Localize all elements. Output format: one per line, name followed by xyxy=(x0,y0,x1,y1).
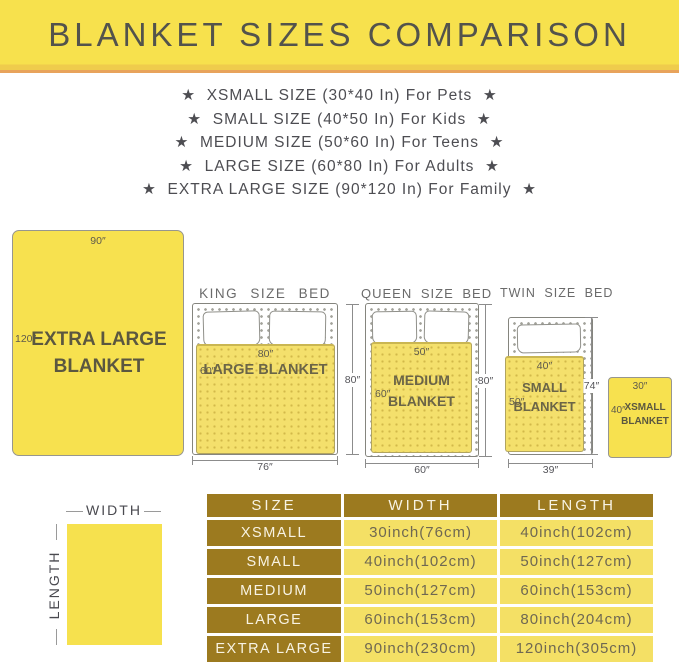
xsmall-blanket-label: XSMALL BLANKET xyxy=(620,401,670,429)
large-blanket: 80″ 60″ LARGE BLANKET xyxy=(196,344,335,454)
table-header-row: SIZE WIDTH LENGTH xyxy=(207,494,656,517)
col-header-size: SIZE xyxy=(207,494,341,517)
width-tick-right xyxy=(144,511,161,512)
twin-bed-title: TWIN SIZE BED xyxy=(500,286,600,300)
xl-blanket-label: EXTRA LARGE BLANKET xyxy=(24,326,174,380)
row-width-value: 40inch(102cm) xyxy=(344,549,497,575)
page-title: BLANKET SIZES COMPARISON xyxy=(48,16,631,54)
row-size-label: LARGE xyxy=(207,607,341,633)
queen-length-dim-label: 80″ xyxy=(477,374,494,388)
twin-length-dimension: 74″ xyxy=(585,317,598,455)
size-list-item: ★ LARGE SIZE (60*80 In) For Adults ★ xyxy=(0,155,679,179)
row-size-label: SMALL xyxy=(207,549,341,575)
infographic-root: BLANKET SIZES COMPARISON ★ XSMALL SIZE (… xyxy=(0,0,679,667)
king-width-dim-label: 76″ xyxy=(255,461,274,473)
row-width-value: 30inch(76cm) xyxy=(344,520,497,546)
queen-width-dimension: 60″ xyxy=(365,459,479,471)
queen-length-dimension: 80″ xyxy=(479,304,492,457)
length-axis-label: LENGTH xyxy=(46,540,62,630)
xl-width-dim: 90″ xyxy=(13,235,183,247)
row-size-label: EXTRA LARGE xyxy=(207,636,341,662)
medium-blanket: 50″ 60″ MEDIUM BLANKET xyxy=(371,342,472,453)
row-size-label: MEDIUM xyxy=(207,578,341,604)
queen-width-dim-label: 60″ xyxy=(412,464,431,476)
row-width-value: 90inch(230cm) xyxy=(344,636,497,662)
row-width-value: 50inch(127cm) xyxy=(344,578,497,604)
xsmall-width-dim: 30″ xyxy=(609,381,671,392)
medium-blanket-label: MEDIUM BLANKET xyxy=(382,370,461,412)
row-length-value: 40inch(102cm) xyxy=(500,520,653,546)
twin-width-dim-label: 39″ xyxy=(541,464,560,476)
col-header-length: LENGTH xyxy=(500,494,653,517)
length-tick-top xyxy=(56,524,57,540)
table-row: MEDIUM 50inch(127cm) 60inch(153cm) xyxy=(207,578,656,604)
king-pillow-right xyxy=(269,311,327,347)
size-list: ★ XSMALL SIZE (30*40 In) For Pets ★ ★ SM… xyxy=(0,84,679,202)
size-list-item: ★ SMALL SIZE (40*50 In) For Kids ★ xyxy=(0,108,679,132)
table-row: EXTRA LARGE 90inch(230cm) 120inch(305cm) xyxy=(207,636,656,662)
twin-width-dimension: 39″ xyxy=(508,459,593,471)
large-blanket-label: LARGE BLANKET xyxy=(197,362,334,378)
twin-length-dim-label: 74″ xyxy=(583,379,600,393)
king-pillow-left xyxy=(203,310,261,346)
small-blanket-top-dim: 40″ xyxy=(506,360,583,372)
queen-pillow-left xyxy=(372,311,418,345)
axes-blanket-swatch xyxy=(67,524,162,645)
table-row: XSMALL 30inch(76cm) 40inch(102cm) xyxy=(207,520,656,546)
king-length-dim-label: 80″ xyxy=(344,373,361,387)
king-bed-title: KING SIZE BED xyxy=(186,286,344,301)
width-axis-label: WIDTH xyxy=(84,502,144,518)
small-blanket-label: SMALL BLANKET xyxy=(512,378,577,416)
header-banner: BLANKET SIZES COMPARISON xyxy=(0,0,679,73)
xsmall-blanket: 30″ 40″ XSMALL BLANKET xyxy=(608,377,672,458)
row-width-value: 60inch(153cm) xyxy=(344,607,497,633)
length-tick-bottom xyxy=(56,629,57,645)
medium-blanket-top-dim: 50″ xyxy=(372,346,471,358)
row-length-value: 50inch(127cm) xyxy=(500,549,653,575)
row-length-value: 80inch(204cm) xyxy=(500,607,653,633)
extra-large-blanket: 90″ 120″ EXTRA LARGE BLANKET xyxy=(12,230,184,456)
size-list-item: ★ EXTRA LARGE SIZE (90*120 In) For Famil… xyxy=(0,178,679,202)
row-size-label: XSMALL xyxy=(207,520,341,546)
king-width-dimension: 76″ xyxy=(192,456,338,468)
small-blanket: 40″ 50″ SMALL BLANKET xyxy=(505,356,584,452)
size-list-item: ★ XSMALL SIZE (30*40 In) For Pets ★ xyxy=(0,84,679,108)
queen-bed-title: QUEEN SIZE BED xyxy=(361,286,483,301)
large-blanket-top-dim: 80″ xyxy=(197,348,334,360)
twin-pillow xyxy=(517,323,581,353)
table-row: LARGE 60inch(153cm) 80inch(204cm) xyxy=(207,607,656,633)
row-length-value: 120inch(305cm) xyxy=(500,636,653,662)
row-length-value: 60inch(153cm) xyxy=(500,578,653,604)
table-row: SMALL 40inch(102cm) 50inch(127cm) xyxy=(207,549,656,575)
queen-pillow-right xyxy=(424,310,470,344)
width-tick-left xyxy=(66,511,83,512)
king-length-dimension: 80″ xyxy=(346,304,359,455)
size-list-item: ★ MEDIUM SIZE (50*60 In) For Teens ★ xyxy=(0,131,679,155)
col-header-width: WIDTH xyxy=(344,494,497,517)
size-table: SIZE WIDTH LENGTH XSMALL 30inch(76cm) 40… xyxy=(207,494,656,662)
